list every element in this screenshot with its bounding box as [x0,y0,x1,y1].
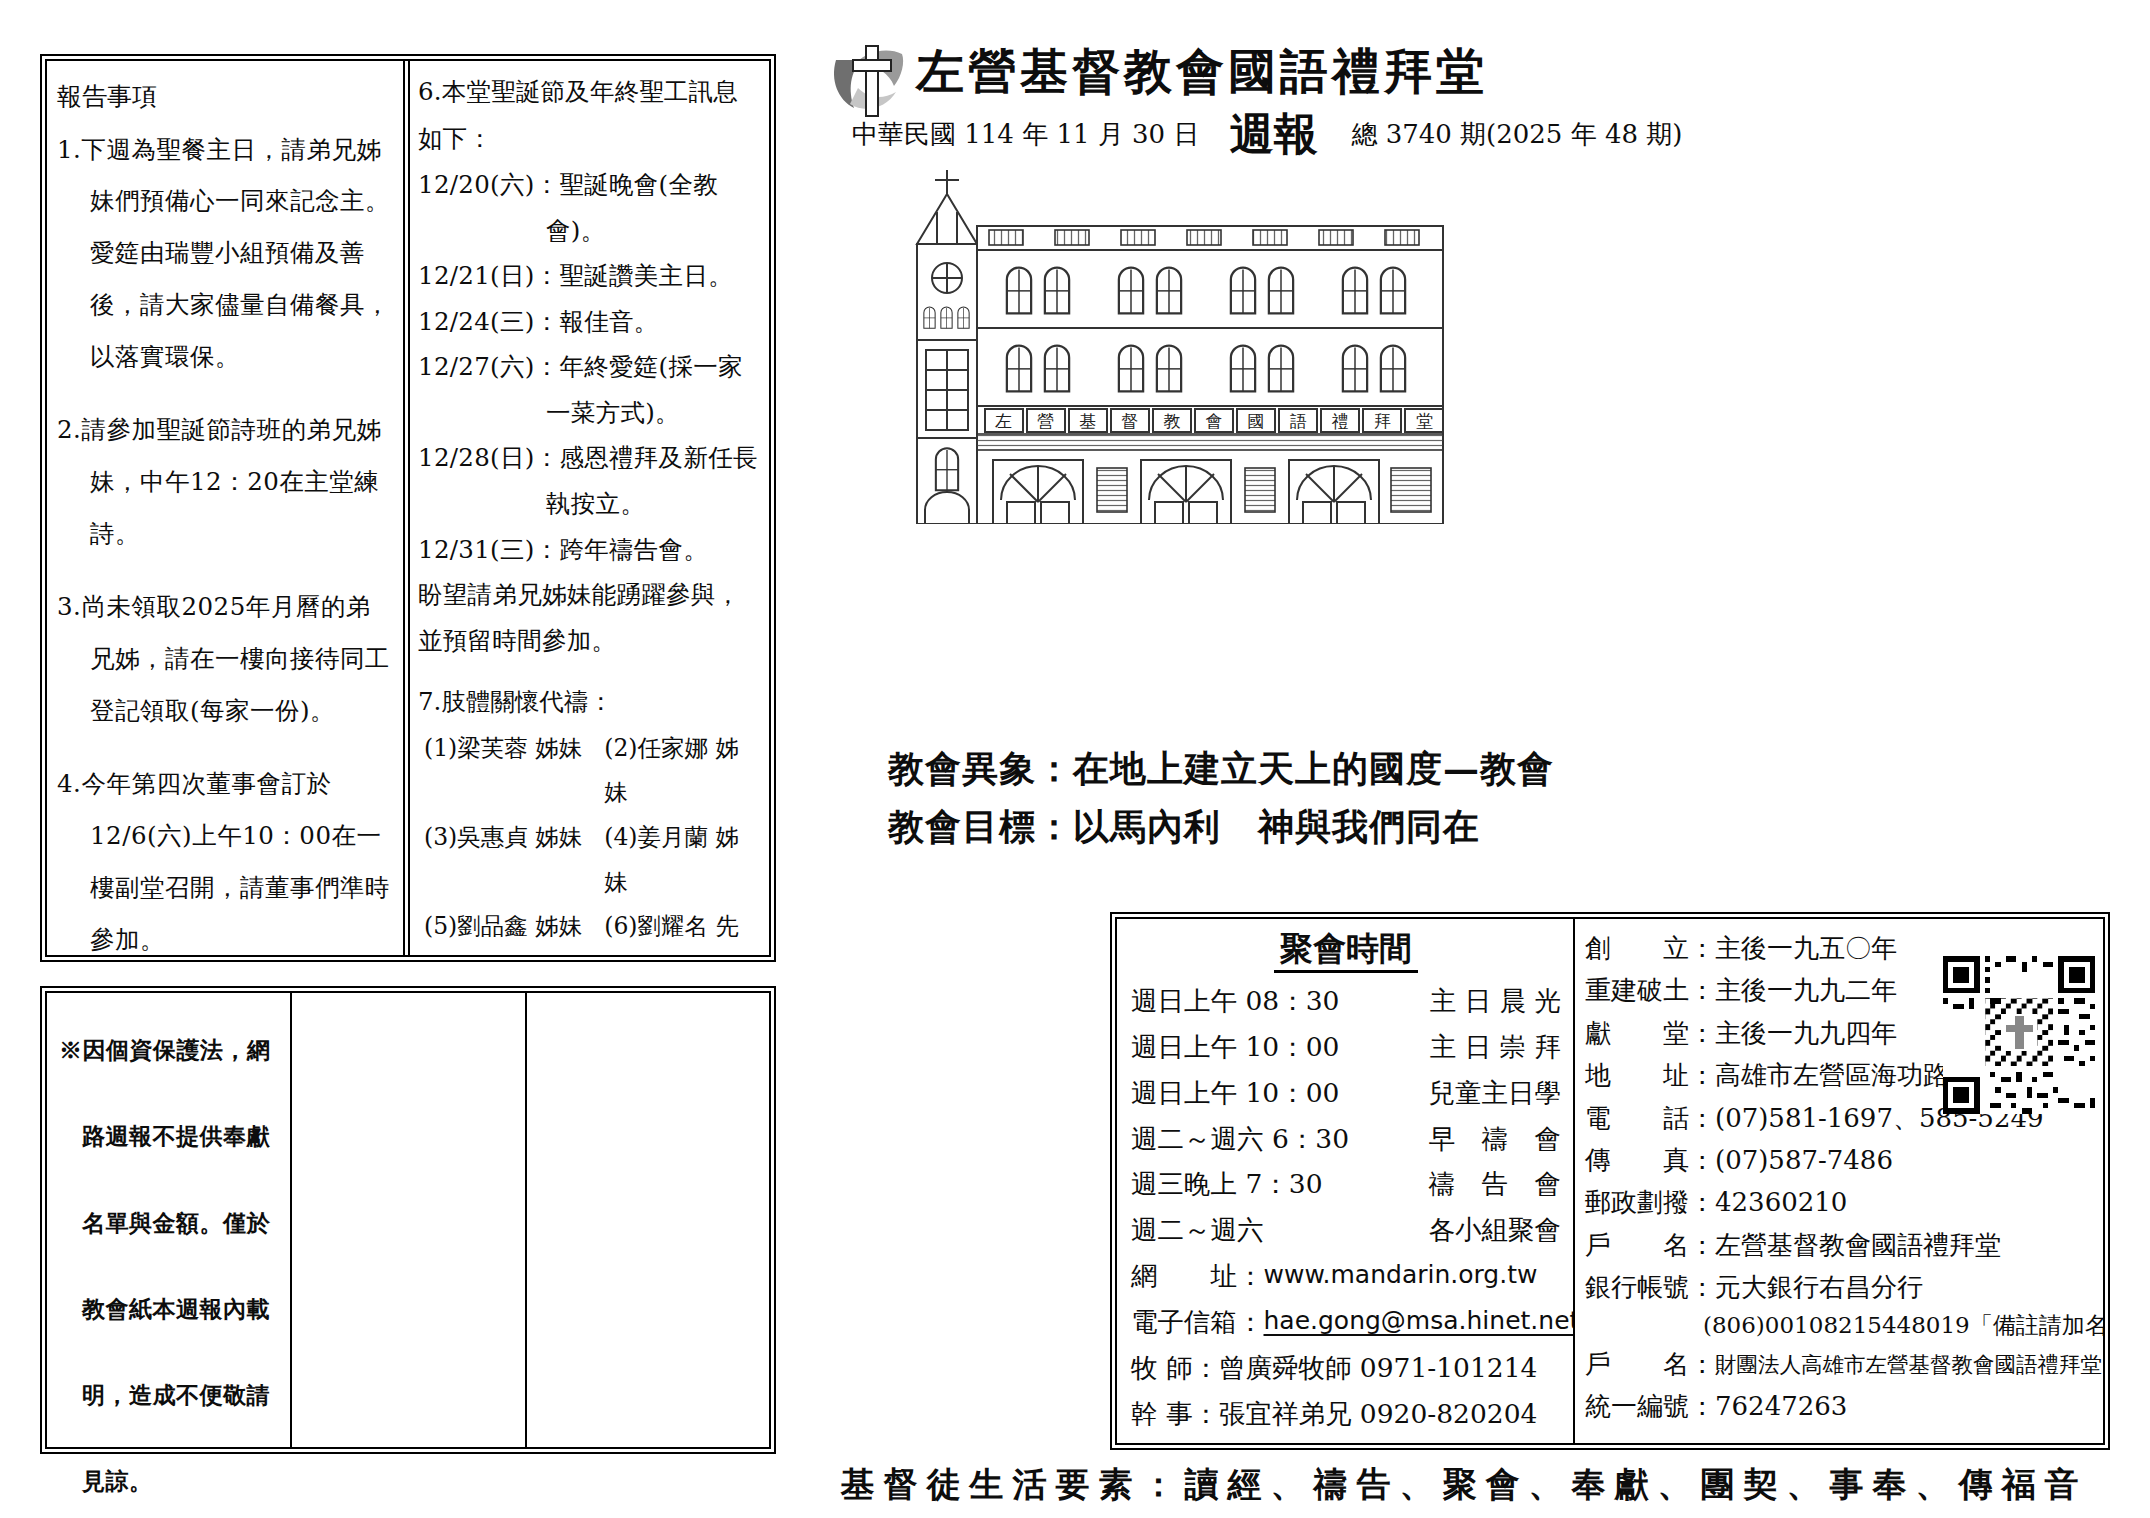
qr-center-logo [2001,1014,2038,1051]
meeting-row: 週三晚上 7：30禱 告 會 [1131,1161,1561,1207]
website-url: www.mandarin.org.tw [1264,1253,1538,1299]
schedule-line: 12/21(日)：聖誕讚美主日。 [418,253,761,299]
announcements-right-column: 6.本堂聖誕節及年終聖工訊息如下： 12/20(六)：聖誕晚會(全教會)。 12… [403,61,769,955]
christmas-schedule-heading: 6.本堂聖誕節及年終聖工訊息如下： [418,69,761,162]
detail-row: 戶 名：財團法人高雄市左營基督教會國語禮拜堂 [1585,1343,2097,1385]
announcements-title: 報告事項 [57,71,393,124]
privacy-notice-column: ※因個資保護法，網路週報不提供奉獻名單與金額。僅於教會紙本週報內載明，造成不便敬… [47,993,292,1447]
church-logo [828,44,914,122]
privacy-notice-text: ※因個資保護法，網路週報不提供奉獻名單與金額。僅於教會紙本週報內載明，造成不便敬… [59,1007,282,1518]
empty-column [292,993,527,1447]
main-building: 左營基督教會國語禮拜堂 [977,226,1443,524]
announcement-item: 2.請參加聖誕節詩班的弟兄姊妹，中午12：20在主堂練詩。 [57,404,393,560]
privacy-notice-box: ※因個資保護法，網路週報不提供奉獻名單與金額。僅於教會紙本週報內載明，造成不便敬… [40,986,776,1454]
prayer-names-row: (1)梁芙蓉 姊妹(2)任家娜 姊妹 [418,726,761,815]
dateline: 中華民國 114 年 11 月 30 日 週報 總 3740 期(2025 年 … [852,112,1532,156]
detail-row: 傳 真：(07)587-7486 [1585,1139,2097,1181]
meeting-row: 週日上午 08：30主 日 晨 光 [1131,978,1561,1024]
announcement-item: 4.今年第四次董事會訂於12/6(六)上午10：00在一樓副堂召開，請董事們準時… [57,758,393,955]
meeting-row: 週二～週六 6：30早 禱 會 [1131,1116,1561,1162]
detail-row: 統一編號：76247263 [1585,1385,2097,1427]
meeting-times-title: 聚會時間 [1131,927,1561,972]
schedule-line: 12/24(三)：報佳音。 [418,299,761,345]
announcements-box: 報告事項 1.下週為聖餐主日，請弟兄姊妹們預備心一同來記念主。愛筵由瑞豐小組預備… [40,54,776,962]
prayer-names-row: (5)劉品鑫 姊妹(6)劉耀名 先生 [418,904,761,955]
detail-row: 戶 名：左營基督教會國語禮拜堂 [1585,1224,2097,1266]
church-goal-line: 教會目標：以馬內利 神與我們同在 [888,798,1568,856]
bulletin-label: 週報 [1229,112,1317,156]
issue-number: 總 3740 期(2025 年 48 期) [1351,117,1682,152]
detail-row: 郵政劃撥：42360210 [1585,1181,2097,1223]
email-address: hae.gong@msa.hinet.net [1264,1299,1576,1345]
ground-floor [993,460,1431,524]
roc-date: 中華民國 114 年 11 月 30 日 [852,117,1199,152]
church-vision-line: 教會異象：在地上建立天上的國度—教會 [888,740,1568,798]
clerk-row: 幹 事：張宜祥弟兄 0920-820204 [1131,1391,1561,1437]
email-row: 電子信箱：hae.gong@msa.hinet.net [1131,1299,1561,1345]
schedule-line: 12/31(三)：跨年禱告會。 [418,527,761,573]
announcements-left-column: 報告事項 1.下週為聖餐主日，請弟兄姊妹們預備心一同來記念主。愛筵由瑞豐小組預備… [47,61,403,955]
announcement-item: 1.下週為聖餐主日，請弟兄姊妹們預備心一同來記念主。愛筵由瑞豐小組預備及善後，請… [57,124,393,384]
website-row: 網 址：www.mandarin.org.tw [1131,1253,1561,1299]
bank-account-number: (806)00108215448019「備註請加名字」 [1585,1308,2097,1343]
meeting-row: 週二～週六各小組聚會 [1131,1207,1561,1253]
announcement-item: 3.尚未領取2025年月曆的弟兄姊，請在一樓向接待同工登記領取(每家一份)。 [57,581,393,737]
pastor-row: 牧 師：曾廣舜牧師 0971-101214 [1131,1345,1561,1391]
empty-column [527,993,769,1447]
church-name-title: 左營基督教會國語禮拜堂 [916,40,1488,104]
detail-row: 銀行帳號：元大銀行右昌分行 [1585,1266,2097,1308]
schedule-line: 12/27(六)：年終愛筵(採一家一菜方式)。 [418,344,761,435]
meeting-times-column: 聚會時間 週日上午 08：30主 日 晨 光 週日上午 10：00主 日 崇 拜… [1117,919,1575,1443]
qr-code [1943,955,2095,1115]
schedule-line: 12/28(日)：感恩禮拜及新任長執按立。 [418,435,761,526]
meeting-row: 週日上午 10：00主 日 崇 拜 [1131,1024,1561,1070]
tower [917,170,977,524]
christian-life-essentials-footer: 基督徒生活要素：讀經、禱告、聚會、奉獻、團契、事奉、傳福音 [814,1462,2114,1508]
meeting-row: 週日上午 10：00兒童主日學 [1131,1070,1561,1116]
building-name-banner: 左營基督教會國語禮拜堂 [985,409,1443,432]
church-details-column: 創 立：主後一九五〇年 重建破土：主後一九九二年 獻 堂：主後一九九四年 地 址… [1575,919,2103,1443]
vision-statements: 教會異象：在地上建立天上的國度—教會 教會目標：以馬內利 神與我們同在 [888,740,1568,855]
church-info-box: 聚會時間 週日上午 08：30主 日 晨 光 週日上午 10：00主 日 崇 拜… [1110,912,2110,1450]
prayer-list-heading: 7.肢體關懷代禱： [418,679,761,726]
schedule-closing-note: 盼望請弟兄姊妹能踴躍參與，並預留時間參加。 [418,572,761,663]
schedule-line: 12/20(六)：聖誕晚會(全教會)。 [418,162,761,253]
church-building-illustration: 左營基督教會國語禮拜堂 [893,168,1453,524]
prayer-names-row: (3)吳惠貞 姊妹(4)姜月蘭 姊妹 [418,815,761,904]
